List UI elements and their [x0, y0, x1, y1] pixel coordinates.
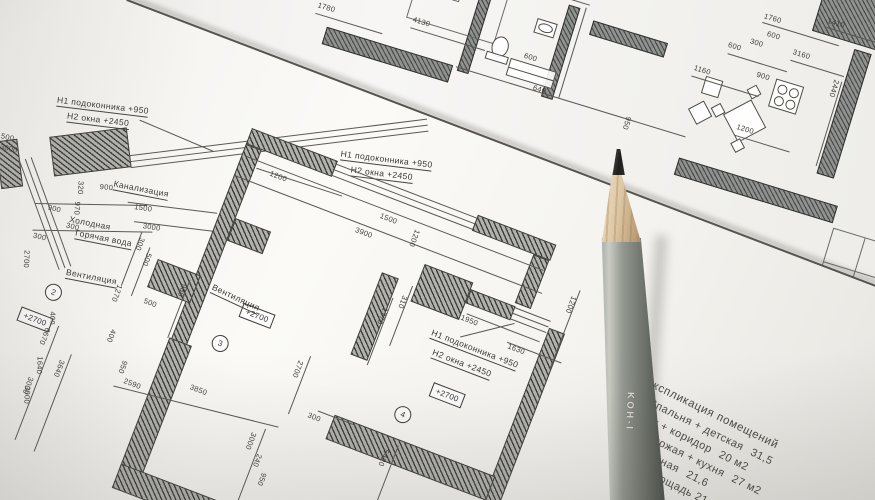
dimension-label: 950 — [621, 116, 632, 131]
pencil-brand-text: KOH-I — [623, 392, 635, 432]
dimension-label: 1200 — [736, 123, 755, 135]
dimension-label: 640 — [532, 84, 547, 95]
dimension-label: 900 — [756, 71, 771, 82]
dimension-label: 300 — [749, 37, 764, 48]
dimension-label: 1160 — [693, 64, 712, 76]
dimension-label: 600 — [766, 30, 781, 41]
dimension-label: 1780 — [317, 1, 336, 13]
photo-of-blueprints: 1780413017601410600300600116031609001200… — [0, 0, 875, 500]
plan-text-label: Вентиляция — [210, 283, 261, 314]
dimension-label: 4130 — [412, 16, 431, 28]
dimension-label: 3160 — [792, 48, 811, 60]
dimension-label: 600 — [523, 52, 538, 63]
dimension-label: 600 — [727, 41, 742, 52]
dimension-label: 2440 — [828, 79, 840, 98]
